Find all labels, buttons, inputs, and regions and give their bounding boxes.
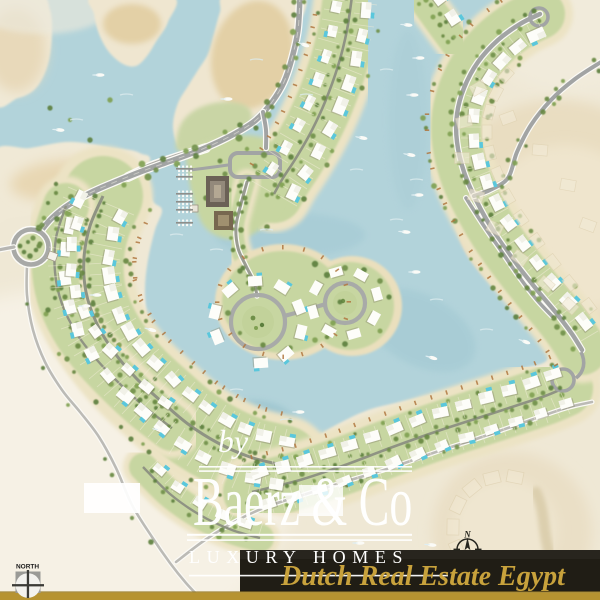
svg-text:NORTH: NORTH xyxy=(16,564,39,571)
svg-text:Dutch Real Estate Egypt: Dutch Real Estate Egypt xyxy=(280,561,566,592)
svg-text:Baerz & Co: Baerz & Co xyxy=(193,462,412,540)
svg-text:by: by xyxy=(218,423,249,459)
svg-text:N: N xyxy=(463,530,471,540)
